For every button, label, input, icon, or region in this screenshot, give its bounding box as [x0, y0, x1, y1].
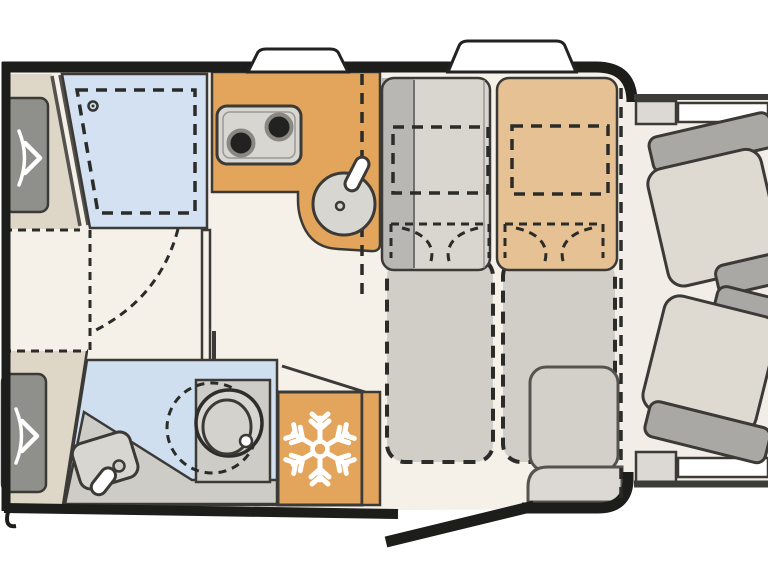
corridor-wall: [202, 230, 210, 362]
burner-right: [267, 115, 292, 140]
bed-conversion-left: [387, 258, 493, 462]
washbasin-knob: [114, 461, 125, 472]
bed-fitting-dot-center: [92, 105, 95, 108]
bottom-wall: [4, 508, 398, 514]
fridge: [278, 392, 362, 505]
fridge-side-cabinet: [362, 392, 380, 505]
burner-left: [229, 131, 254, 156]
running-board-bottom-bracket: [636, 452, 676, 483]
entry-step: [528, 467, 622, 502]
lounge-bench-right: [497, 78, 617, 270]
entry-bench: [530, 367, 618, 471]
lounge-bench-left-strip: [382, 78, 414, 270]
running-board-top-bracket: [636, 101, 676, 124]
floor-plan-canvas: [0, 0, 768, 576]
roof-vent-2: [448, 41, 576, 72]
floor-plan-svg: [0, 0, 768, 576]
toilet-flush-button: [240, 435, 252, 447]
roof-vent-1: [248, 49, 348, 72]
